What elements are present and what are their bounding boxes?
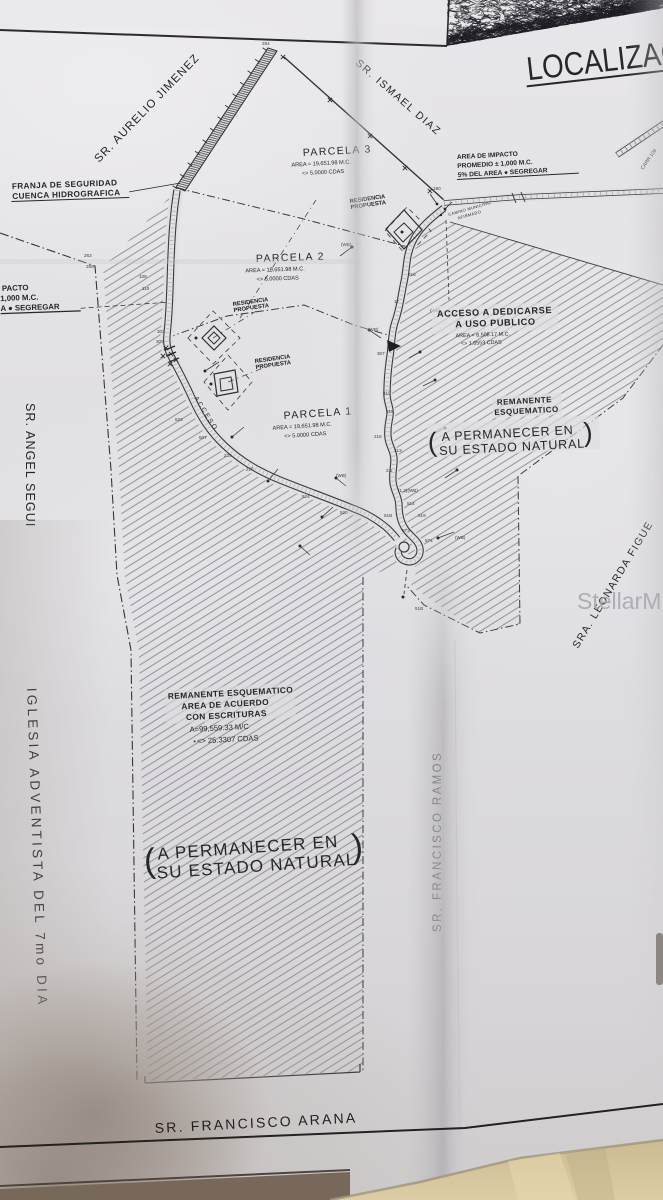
svg-text:110: 110	[142, 286, 150, 291]
svg-text:316: 316	[408, 272, 416, 277]
svg-text:519: 519	[418, 513, 426, 518]
svg-text:226: 226	[246, 466, 255, 472]
svg-text:108: 108	[139, 274, 147, 279]
svg-text:573: 573	[402, 528, 410, 533]
svg-text:524: 524	[302, 494, 310, 499]
svg-text:StellarMLS: StellarMLS	[577, 588, 663, 614]
svg-text:(WB): (WB)	[455, 535, 466, 540]
svg-text:PACTO: PACTO	[2, 283, 29, 293]
svg-text:1,000 M.C.: 1,000 M.C.	[0, 293, 38, 303]
svg-text:SR. ANGEL SEGUI: SR. ANGEL SEGUI	[23, 403, 37, 527]
svg-text:307: 307	[377, 351, 385, 356]
svg-text:523: 523	[175, 417, 183, 422]
svg-text:315: 315	[386, 409, 394, 414]
svg-text:17: 17	[394, 299, 400, 304]
svg-text:313: 313	[394, 448, 402, 453]
svg-text:284: 284	[262, 41, 270, 46]
svg-text:305: 305	[156, 339, 164, 344]
svg-text:2.5: 2.5	[386, 468, 393, 473]
svg-text:(1.2)(WB): (1.2)(WB)	[398, 488, 418, 493]
svg-text:303: 303	[157, 329, 165, 334]
svg-text:507: 507	[199, 435, 207, 440]
svg-text:51B: 51B	[384, 513, 392, 518]
svg-text:190: 190	[433, 186, 441, 191]
svg-text:310: 310	[383, 391, 391, 396]
svg-text:225: 225	[224, 453, 232, 458]
svg-text:514: 514	[407, 501, 415, 506]
svg-text:265: 265	[86, 264, 94, 269]
svg-text:(: (	[427, 427, 438, 457]
svg-text:263: 263	[84, 253, 92, 258]
svg-text:): )	[583, 417, 594, 447]
